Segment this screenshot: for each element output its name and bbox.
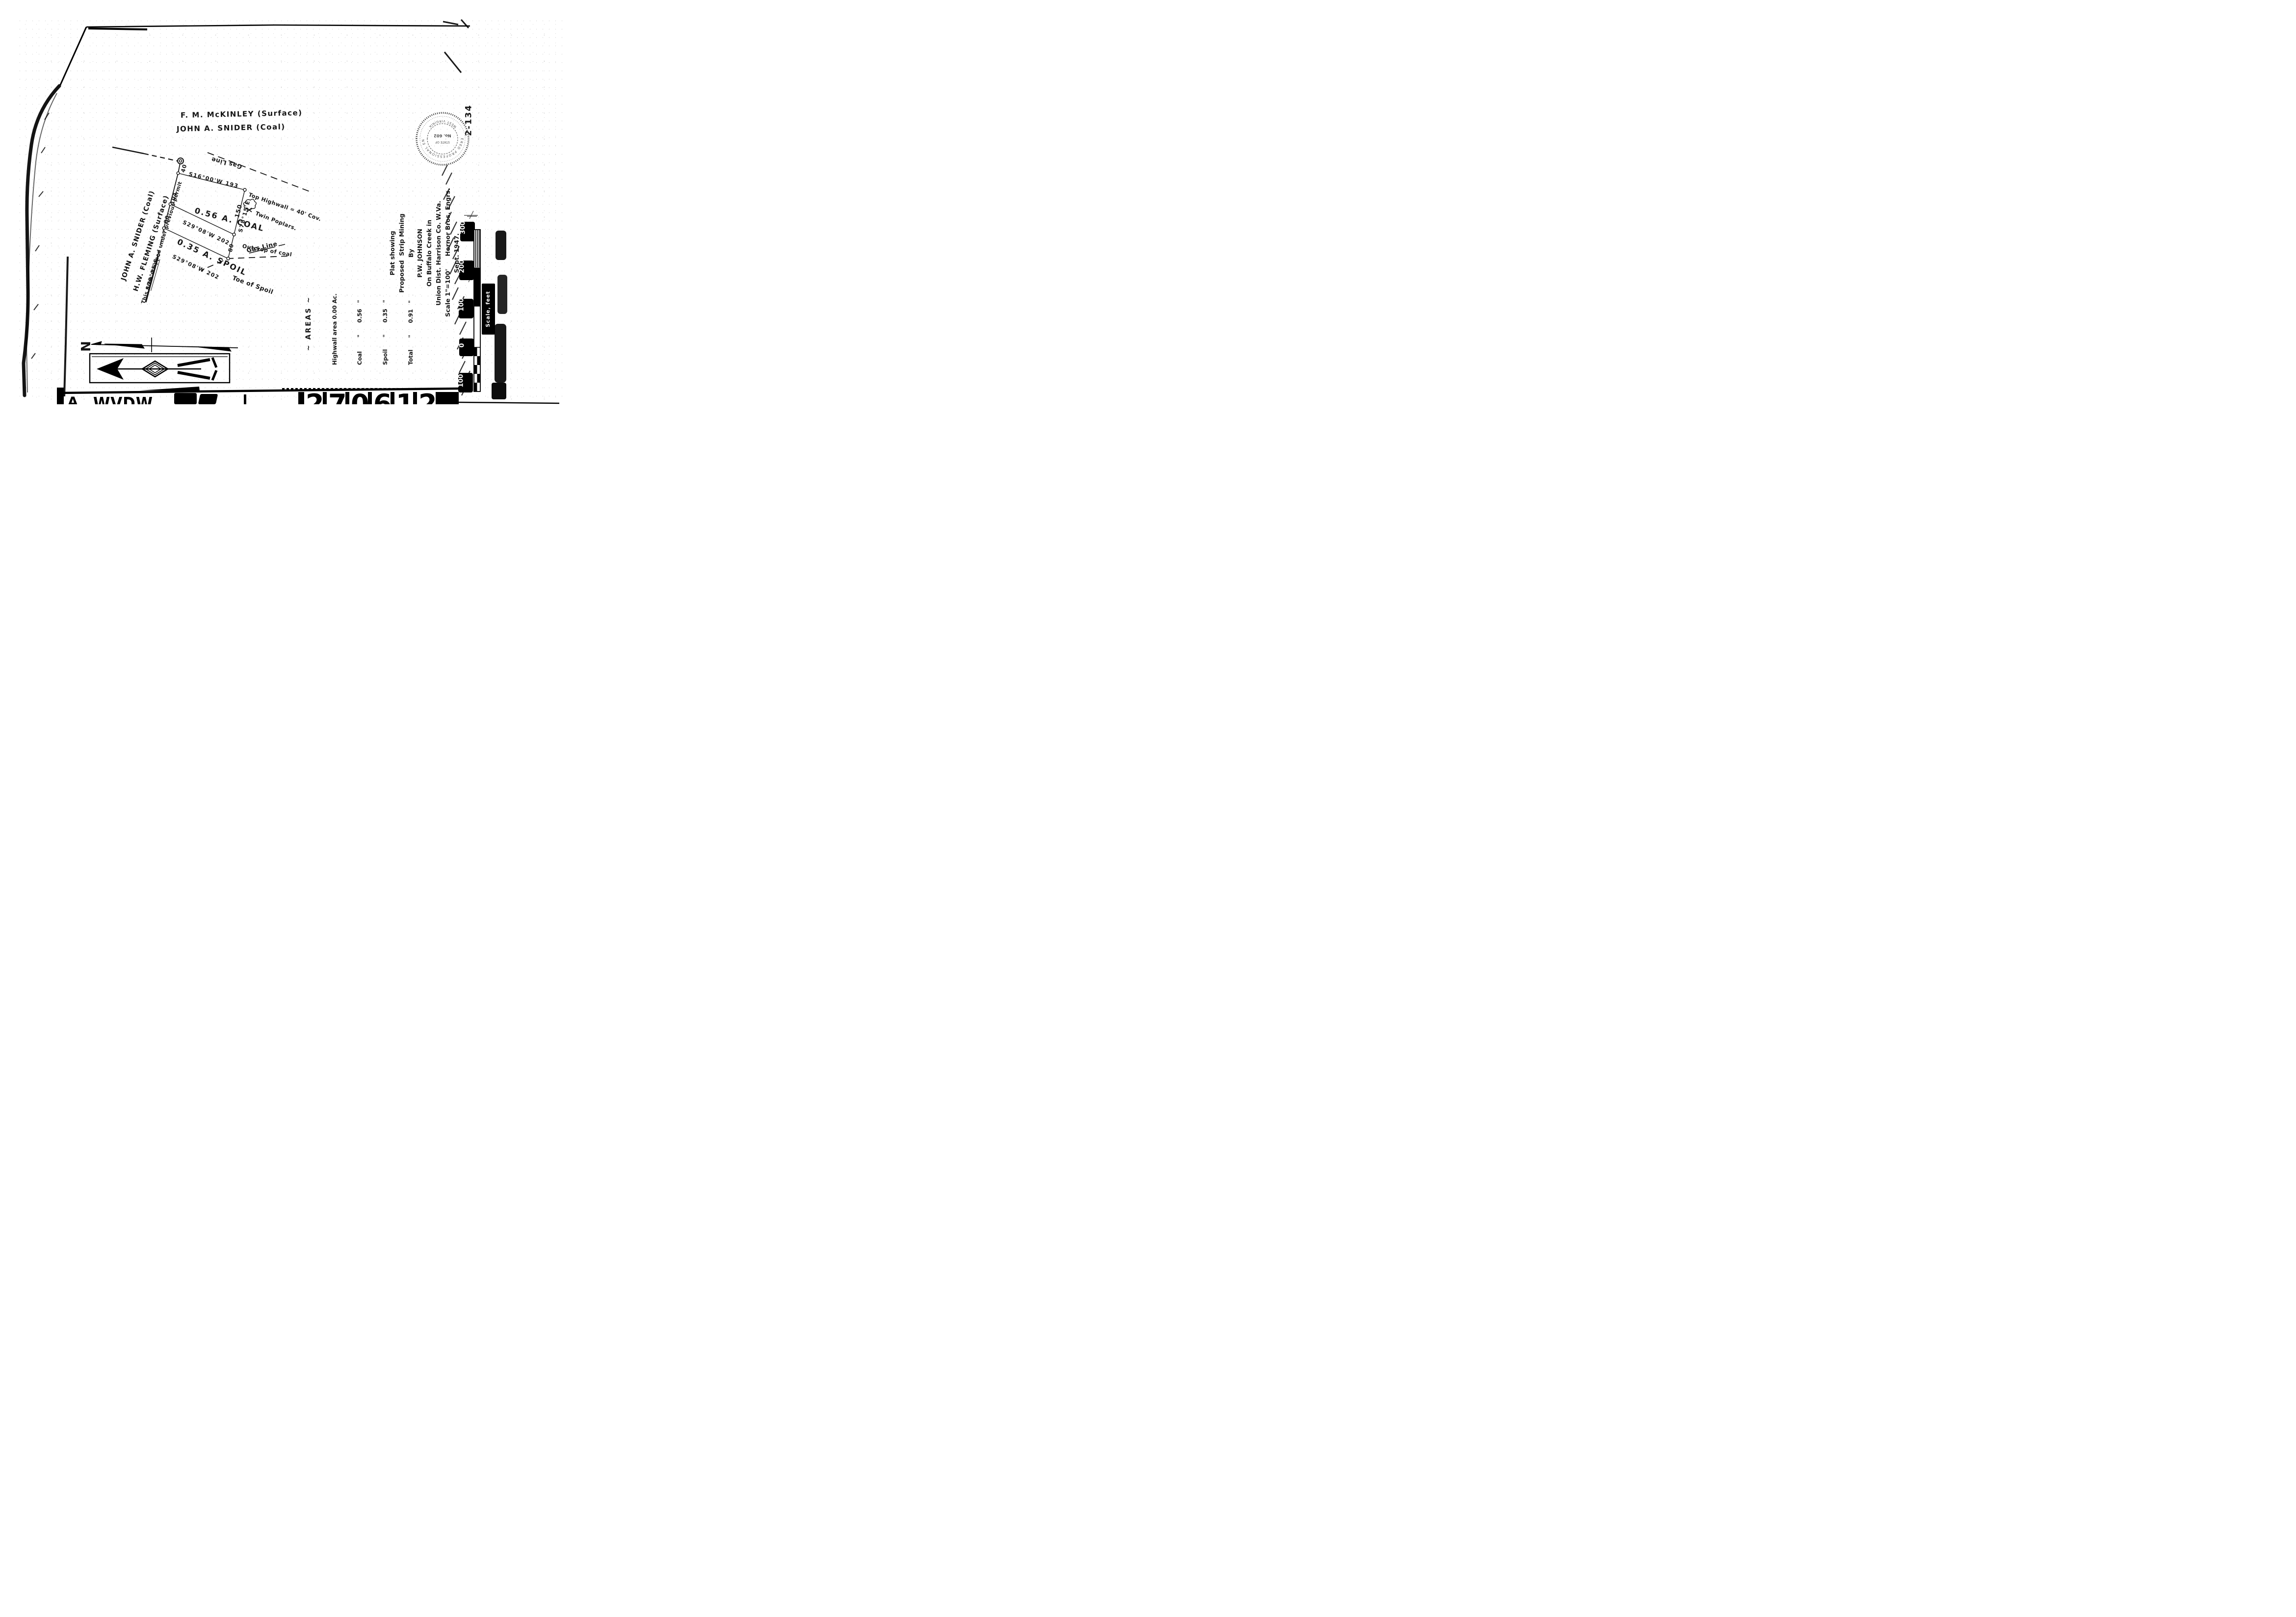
- areas-row-highwall: Highwall area 0.00 Ac.: [331, 282, 339, 365]
- digit-card-3: 0: [349, 392, 368, 404]
- digit-card-1: 2: [304, 392, 323, 404]
- title-line-6: Union Dist. Harrison Co. W.Va.: [434, 189, 444, 317]
- archive-number: 2-134: [465, 104, 473, 136]
- bottom-suffix-mark: ∫: [442, 391, 451, 404]
- bottom-blob-1: [174, 393, 197, 404]
- scanned-plat-page: REGISTERED PROFESSIONAL ENGINEER WEST VI…: [0, 0, 574, 404]
- north-needle-arrow: [91, 338, 238, 352]
- areas-row-coal: Coal " 0.56 ": [356, 282, 364, 365]
- seal-number: No. 602: [434, 133, 451, 138]
- coal-owner-caption: JOHN A. SNIDER (Coal): [177, 123, 286, 133]
- segment-length-80-right: 80: [228, 243, 235, 252]
- top-highwall-point: [243, 188, 246, 191]
- scale-label-0: 0: [459, 343, 466, 347]
- title-line-5: On Buffalo Creek in: [425, 189, 434, 317]
- areas-heading: ~ AREAS ~: [305, 282, 313, 365]
- north-letter: N: [80, 341, 93, 352]
- digit-card-6: 2: [417, 392, 436, 404]
- digit-card-5: 1: [394, 392, 413, 404]
- title-line-7: Scale 1"=100' Hornor Bros. Engrs.: [444, 189, 453, 317]
- title-line-1: Plat showing: [388, 189, 397, 317]
- bottom-left-letter: A: [68, 394, 78, 404]
- bottom-agency-letters: WVDW: [93, 394, 153, 404]
- engineer-seal-stamp: REGISTERED PROFESSIONAL ENGINEER WEST VI…: [417, 113, 469, 165]
- digit-card-4: 6: [372, 392, 391, 404]
- digit-card-2: 7: [327, 392, 345, 404]
- bottom-bracket-mark: [244, 394, 246, 404]
- title-line-2: Proposed Strip Mining: [397, 189, 407, 317]
- title-line-4: P.W. JOHNSON: [416, 189, 425, 317]
- outcrop-point: [233, 233, 235, 236]
- bottom-blob-2: [198, 394, 218, 404]
- scale-caption: Scale, feet: [485, 291, 491, 327]
- scale-bar-black-blobs: [458, 222, 507, 399]
- title-line-3: By: [407, 189, 416, 317]
- compass-arrow-icon: [97, 358, 216, 380]
- scale-label-100: 100: [458, 298, 466, 311]
- scale-label-300: 300: [460, 221, 467, 234]
- scale-label-100b: 100: [458, 374, 465, 387]
- bottom-serration-marks: [282, 388, 457, 390]
- seal-state-of: STATE OF: [435, 140, 450, 144]
- scale-bar: [458, 222, 507, 399]
- compass-rose-box: [90, 354, 230, 383]
- scale-label-200: 200: [459, 260, 466, 273]
